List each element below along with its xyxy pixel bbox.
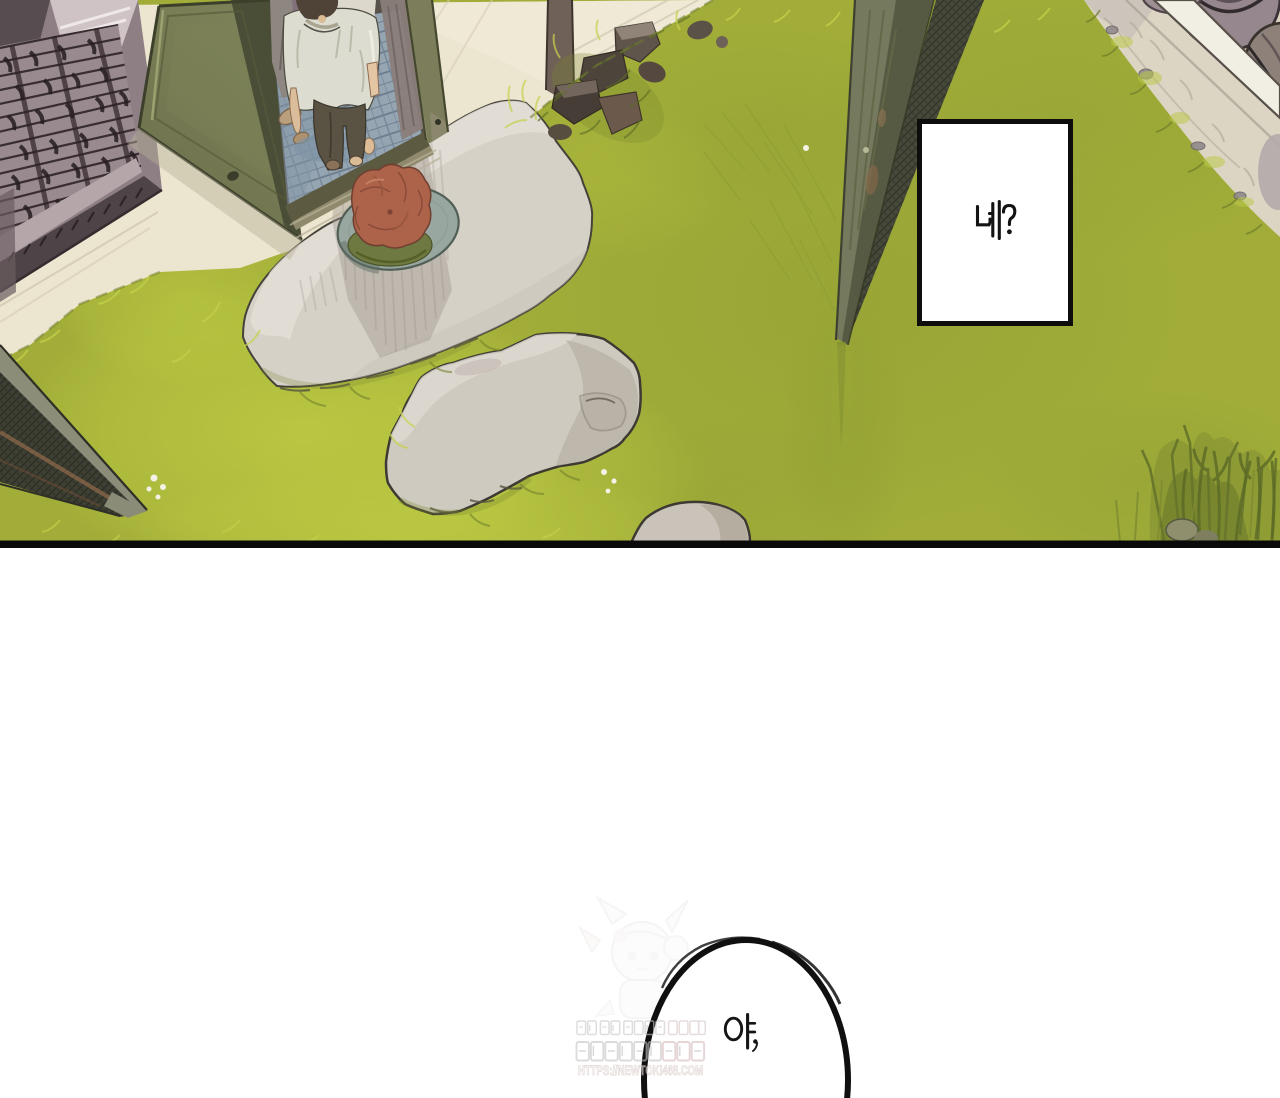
svg-text:HTTPS://NEWTOKI468.COM: HTTPS://NEWTOKI468.COM [578, 1063, 703, 1078]
